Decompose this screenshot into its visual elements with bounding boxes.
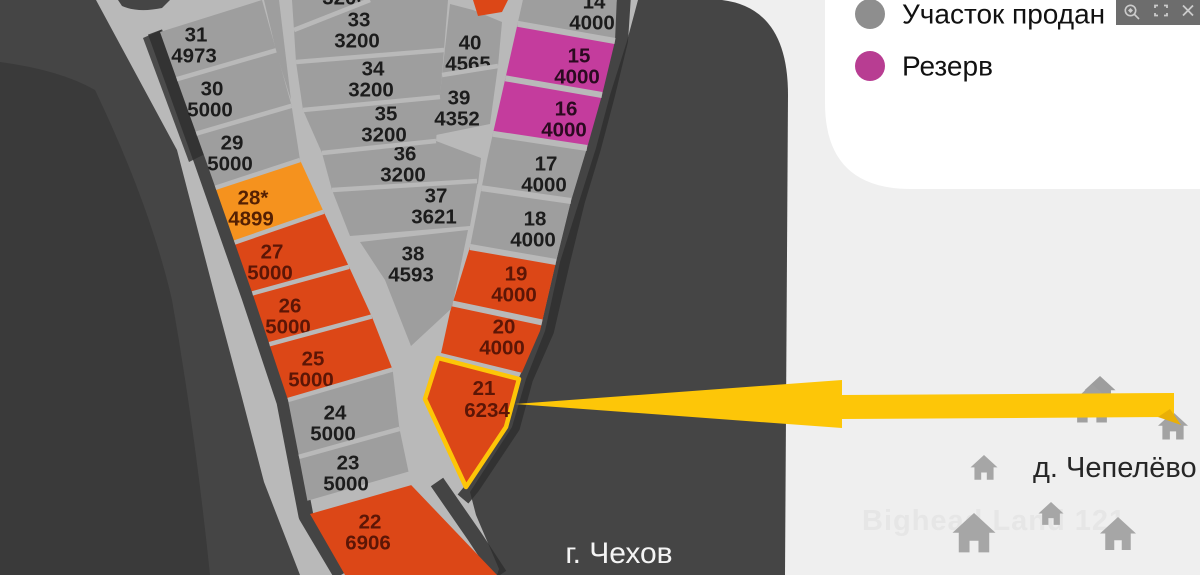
svg-text:15: 15 bbox=[568, 45, 591, 68]
svg-text:21: 21 bbox=[473, 377, 496, 400]
svg-text:22: 22 bbox=[359, 511, 382, 534]
svg-text:6906: 6906 bbox=[345, 532, 391, 555]
svg-text:28*: 28* bbox=[238, 187, 269, 210]
svg-text:25: 25 bbox=[302, 348, 325, 371]
svg-text:18: 18 bbox=[524, 208, 547, 231]
svg-text:г. Чехов: г. Чехов bbox=[565, 537, 672, 570]
svg-text:29: 29 bbox=[221, 132, 244, 155]
svg-text:19: 19 bbox=[505, 263, 528, 286]
svg-text:33: 33 bbox=[348, 9, 371, 32]
svg-text:34: 34 bbox=[362, 58, 385, 81]
svg-text:4593: 4593 bbox=[388, 264, 434, 287]
svg-text:40: 40 bbox=[459, 32, 482, 55]
svg-text:3621: 3621 bbox=[411, 206, 457, 229]
svg-text:24: 24 bbox=[324, 402, 347, 425]
svg-text:4000: 4000 bbox=[569, 12, 615, 35]
svg-text:4899: 4899 bbox=[228, 208, 274, 231]
svg-text:4000: 4000 bbox=[510, 229, 556, 252]
svg-text:Резерв: Резерв bbox=[902, 51, 993, 82]
svg-text:37: 37 bbox=[425, 185, 448, 208]
svg-text:4000: 4000 bbox=[491, 284, 537, 307]
svg-text:4000: 4000 bbox=[479, 337, 525, 360]
svg-text:4973: 4973 bbox=[171, 45, 217, 68]
svg-text:5000: 5000 bbox=[187, 99, 233, 122]
svg-text:6234: 6234 bbox=[464, 399, 510, 422]
svg-text:4000: 4000 bbox=[541, 119, 587, 142]
svg-text:30: 30 bbox=[201, 78, 224, 101]
svg-text:3200: 3200 bbox=[348, 79, 394, 102]
svg-text:5000: 5000 bbox=[247, 262, 293, 285]
svg-text:26: 26 bbox=[279, 295, 302, 318]
svg-text:3200: 3200 bbox=[334, 30, 380, 53]
svg-text:16: 16 bbox=[555, 98, 578, 121]
svg-text:23: 23 bbox=[337, 452, 360, 475]
svg-text:д. Чепелёво: д. Чепелёво bbox=[1033, 452, 1197, 484]
svg-text:38: 38 bbox=[402, 243, 425, 266]
svg-text:Участок продан: Участок продан bbox=[902, 0, 1105, 30]
svg-text:17: 17 bbox=[535, 153, 558, 176]
svg-text:39: 39 bbox=[448, 87, 471, 110]
svg-text:31: 31 bbox=[185, 24, 208, 47]
svg-text:35: 35 bbox=[375, 103, 398, 126]
svg-text:5000: 5000 bbox=[207, 153, 253, 176]
svg-text:27: 27 bbox=[261, 241, 284, 264]
svg-text:5000: 5000 bbox=[323, 473, 369, 496]
svg-text:4352: 4352 bbox=[434, 108, 480, 131]
